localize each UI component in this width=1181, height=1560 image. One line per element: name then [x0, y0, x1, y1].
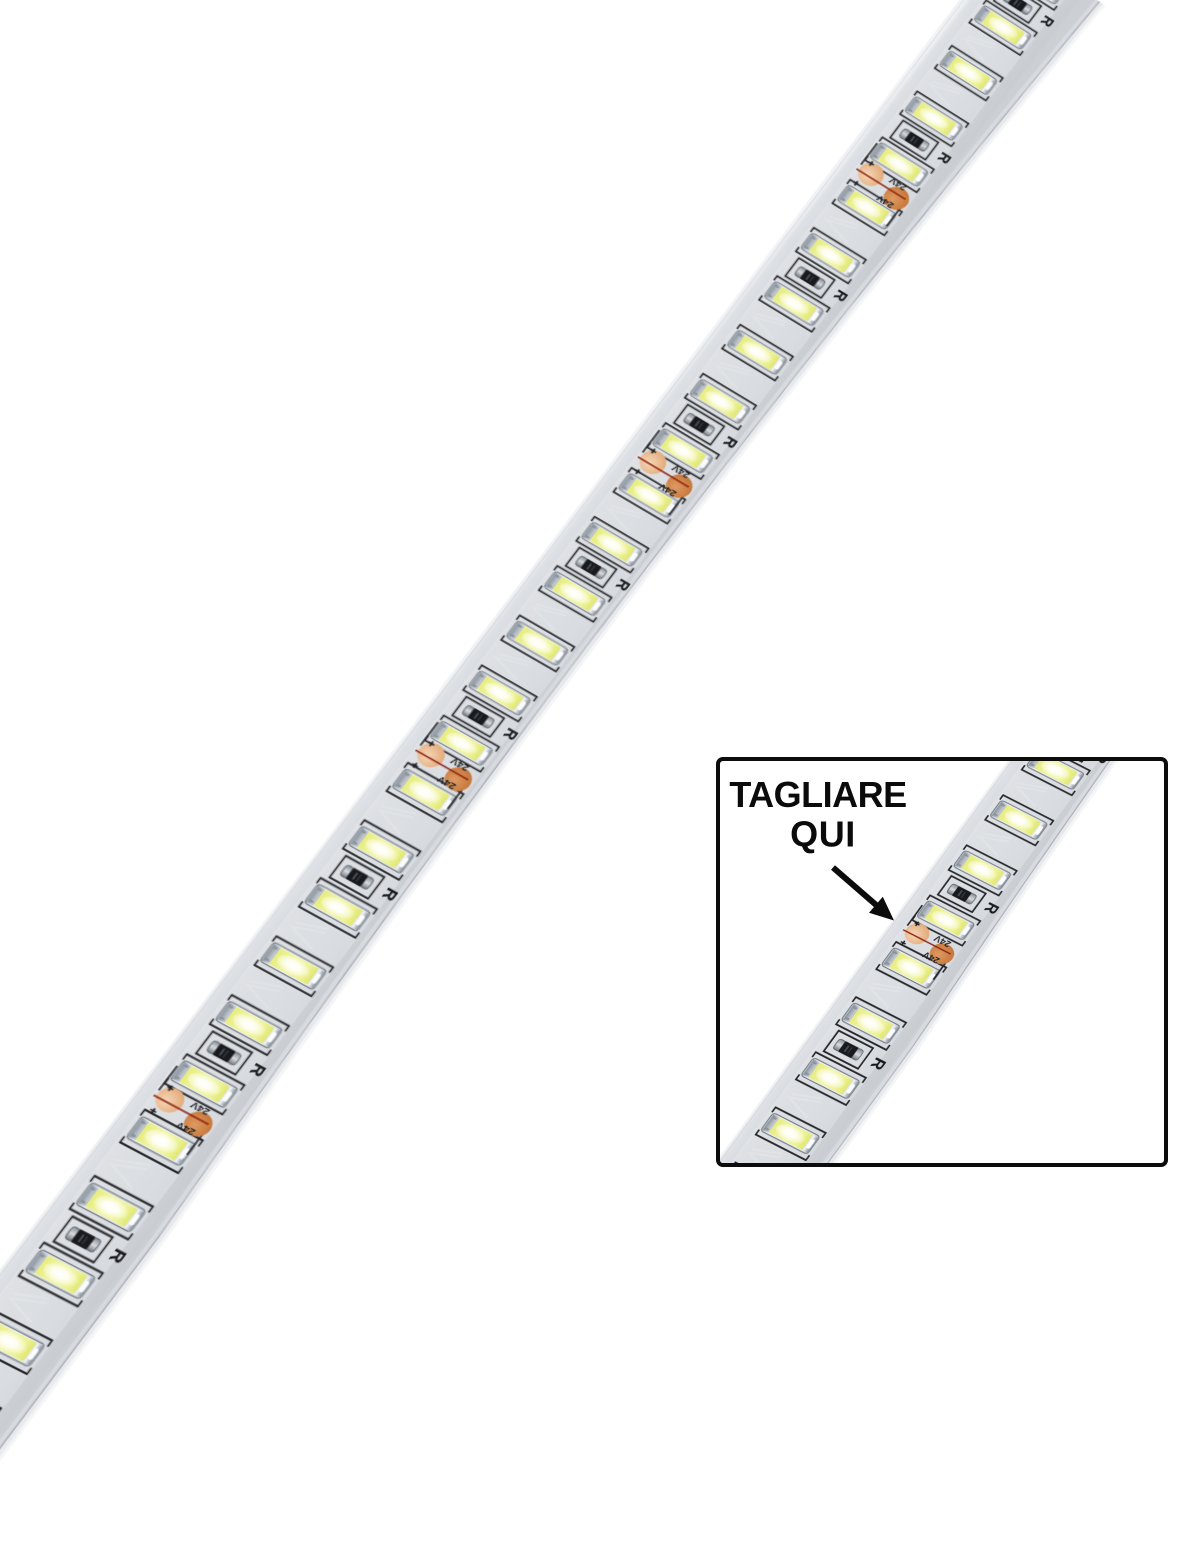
svg-text:QUI: QUI [790, 813, 856, 854]
svg-text:TAGLIARE: TAGLIARE [730, 774, 907, 815]
